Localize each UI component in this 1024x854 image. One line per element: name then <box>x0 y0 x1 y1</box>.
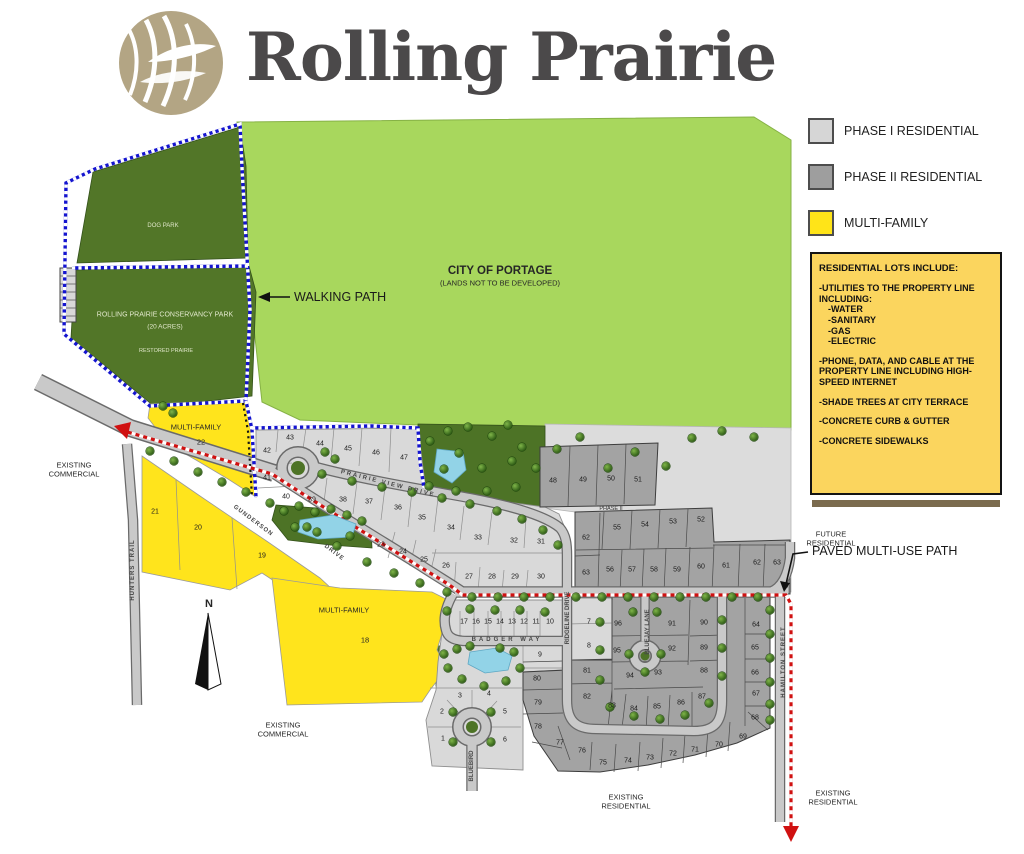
lot-58: 58 <box>650 567 658 574</box>
lot-64: 64 <box>752 622 760 629</box>
phase-ii-road-label: PHASE II <box>599 506 622 512</box>
lot-20: 20 <box>194 525 202 532</box>
existing-commercial-label-west-2: COMMERCIAL <box>49 470 100 479</box>
lot-16: 16 <box>472 619 480 626</box>
tree-icon <box>541 608 549 616</box>
tree-icon <box>416 579 424 587</box>
tree-icon <box>444 427 452 435</box>
lot-84: 84 <box>630 706 638 713</box>
tree-icon <box>705 699 713 707</box>
tree-icon <box>502 677 510 685</box>
tree-icon <box>426 437 434 445</box>
lot-69: 69 <box>739 734 747 741</box>
tree-icon <box>443 607 451 615</box>
tree-icon <box>520 593 528 601</box>
tree-icon <box>572 593 580 601</box>
dog-park-label: DOG PARK <box>147 223 178 229</box>
tree-icon <box>169 409 177 417</box>
legend-label: PHASE II RESIDENTIAL <box>844 170 982 184</box>
lot-89: 89 <box>700 645 708 652</box>
tree-icon <box>553 445 561 453</box>
tree-icon <box>487 738 495 746</box>
lot-94: 94 <box>626 673 634 680</box>
legend-item-3: MULTI-FAMILY <box>808 210 1020 236</box>
lot-83: 83 <box>608 703 616 710</box>
lot-5: 5 <box>503 709 507 716</box>
lot-45: 45 <box>344 446 352 453</box>
lot-12: 12 <box>520 619 528 626</box>
tree-icon <box>504 421 512 429</box>
tree-icon <box>518 515 526 523</box>
info-line: -SANITARY <box>828 315 993 326</box>
tree-icon <box>466 642 474 650</box>
tree-icon <box>629 608 637 616</box>
lot-42: 42 <box>263 448 271 455</box>
lot-40: 40 <box>282 494 290 501</box>
lot-13: 13 <box>508 619 516 626</box>
lot-56: 56 <box>606 567 614 574</box>
lot-25: 25 <box>420 557 428 564</box>
tree-icon <box>766 606 774 614</box>
tree-icon <box>480 682 488 690</box>
tree-icon <box>518 443 526 451</box>
tree-icon <box>242 488 250 496</box>
lot-27: 27 <box>465 574 473 581</box>
tree-icon <box>146 447 154 455</box>
tree-icon <box>295 502 303 510</box>
tree-icon <box>343 511 351 519</box>
lot-67: 67 <box>752 691 760 698</box>
tree-icon <box>766 654 774 662</box>
future-residential-bar <box>812 500 1000 507</box>
info-line: -GAS <box>828 326 993 337</box>
walking-path-label: WALKING PATH <box>294 290 386 304</box>
lot-79: 79 <box>534 700 542 707</box>
lot-71: 71 <box>691 747 699 754</box>
lot-85: 85 <box>653 704 661 711</box>
lot-81: 81 <box>583 668 591 675</box>
tree-icon <box>466 500 474 508</box>
legend-label: MULTI-FAMILY <box>844 216 928 230</box>
tree-icon <box>449 708 457 716</box>
lot-8: 8 <box>587 643 591 650</box>
lot-78: 78 <box>534 724 542 731</box>
lot-63: 63 <box>773 560 781 567</box>
tree-icon <box>766 700 774 708</box>
existing-commercial-label-south-2: COMMERCIAL <box>258 730 309 739</box>
phase1-lots-7-8-block <box>567 598 612 660</box>
info-line: -SHADE TREES AT CITY TERRACE <box>819 397 993 408</box>
tree-icon <box>483 487 491 495</box>
city-of-portage-sublabel: (LANDS NOT TO BE DEVELOPED) <box>440 279 560 288</box>
lot-23: 23 <box>377 542 385 549</box>
tree-icon <box>440 650 448 658</box>
tree-icon <box>468 593 476 601</box>
street-label: BADGER WAY <box>472 637 543 643</box>
tree-icon <box>653 608 661 616</box>
info-line: -CONCRETE SIDEWALKS <box>819 436 993 447</box>
tree-icon <box>750 433 758 441</box>
conservancy-acres-label: (20 ACRES) <box>147 324 182 331</box>
tree-icon <box>630 712 638 720</box>
info-line: -UTILITIES TO THE PROPERTY LINE INCLUDIN… <box>819 283 993 304</box>
lot-92: 92 <box>668 646 676 653</box>
tree-icon <box>218 478 226 486</box>
tree-icon <box>438 494 446 502</box>
lot-37: 37 <box>365 499 373 506</box>
tree-icon <box>681 711 689 719</box>
lot-39: 39 <box>308 497 316 504</box>
future-residential-label: FUTURE <box>816 530 846 539</box>
tree-icon <box>280 507 288 515</box>
lot-74: 74 <box>624 758 632 765</box>
tree-icon <box>496 644 504 652</box>
lot-62: 62 <box>753 560 761 567</box>
conservancy-park-area <box>71 266 256 407</box>
lot-10: 10 <box>546 619 554 626</box>
page: { "title": "Rolling Prairie", "colors": … <box>0 0 1024 854</box>
lot-82: 82 <box>583 694 591 701</box>
tree-icon <box>532 464 540 472</box>
tree-icon <box>650 593 658 601</box>
lot-17: 17 <box>460 619 468 626</box>
tree-icon <box>766 678 774 686</box>
tree-icon <box>688 434 696 442</box>
tree-icon <box>266 499 274 507</box>
lot-29: 29 <box>511 574 519 581</box>
lot-88: 88 <box>700 668 708 675</box>
lot-66: 66 <box>751 670 759 677</box>
tree-icon <box>512 483 520 491</box>
lot-36: 36 <box>394 505 402 512</box>
multi-family-22-number: 22 <box>197 438 205 447</box>
tree-icon <box>466 605 474 613</box>
tree-icon <box>358 517 366 525</box>
multi-family-22-label: MULTI-FAMILY <box>171 423 222 432</box>
tree-icon <box>443 588 451 596</box>
tree-icon <box>604 464 612 472</box>
lot-31: 31 <box>537 539 545 546</box>
lot-43: 43 <box>286 435 294 442</box>
tree-icon <box>624 593 632 601</box>
lot-72: 72 <box>669 751 677 758</box>
lot-28: 28 <box>488 574 496 581</box>
lot-41: 41 <box>263 475 271 482</box>
lot-49: 49 <box>579 477 587 484</box>
tree-icon <box>444 664 452 672</box>
lot-57: 57 <box>628 567 636 574</box>
tree-icon <box>327 505 335 513</box>
lot-7: 7 <box>587 619 591 626</box>
street-label: HUNTERS TRAIL <box>130 539 136 600</box>
tree-icon <box>494 593 502 601</box>
info-line: -WATER <box>828 304 993 315</box>
tree-icon <box>331 455 339 463</box>
tree-icon <box>425 482 433 490</box>
lot-50: 50 <box>607 476 615 483</box>
tree-icon <box>539 526 547 534</box>
tree-icon <box>487 708 495 716</box>
lot-3: 3 <box>458 693 462 700</box>
future-residential-label-2: RESIDENTIAL <box>806 539 855 548</box>
lot-9: 9 <box>538 652 542 659</box>
info-box: RESIDENTIAL LOTS INCLUDE:-UTILITIES TO T… <box>810 252 1002 495</box>
lot-76: 76 <box>578 748 586 755</box>
tree-icon <box>702 593 710 601</box>
lot-63: 63 <box>582 570 590 577</box>
lot-55: 55 <box>613 525 621 532</box>
tree-icon <box>311 508 319 516</box>
tree-icon <box>625 650 633 658</box>
info-line: RESIDENTIAL LOTS INCLUDE: <box>819 263 993 274</box>
lot-21: 21 <box>151 509 159 516</box>
lot-6: 6 <box>503 737 507 744</box>
lot-95: 95 <box>613 648 621 655</box>
lot-44: 44 <box>316 441 324 448</box>
lot-96: 96 <box>614 621 622 628</box>
existing-commercial-label-west: EXISTING <box>56 461 91 470</box>
lot-77: 77 <box>556 740 564 747</box>
lot-47: 47 <box>400 455 408 462</box>
tree-icon <box>657 650 665 658</box>
lot-86: 86 <box>677 700 685 707</box>
lot-24: 24 <box>399 549 407 556</box>
info-line: -ELECTRIC <box>828 336 993 347</box>
tree-icon <box>170 457 178 465</box>
tree-icon <box>449 738 457 746</box>
info-line: -PHONE, DATA, AND CABLE AT THE PROPERTY … <box>819 356 993 388</box>
tree-icon <box>390 569 398 577</box>
lot-34: 34 <box>447 525 455 532</box>
lot-51: 51 <box>634 477 642 484</box>
lot-59: 59 <box>673 567 681 574</box>
lot-90: 90 <box>700 620 708 627</box>
tree-icon <box>455 449 463 457</box>
legend: PHASE I RESIDENTIALPHASE II RESIDENTIALM… <box>808 118 1020 256</box>
conservancy-park-label: ROLLING PRAIRIE CONSERVANCY PARK <box>97 312 233 319</box>
tree-icon <box>478 464 486 472</box>
lot-62: 62 <box>582 535 590 542</box>
info-line: -CONCRETE CURB & GUTTER <box>819 416 993 427</box>
tree-icon <box>718 672 726 680</box>
multi-family-18-label: MULTI-FAMILY <box>319 606 370 615</box>
tree-icon <box>596 646 604 654</box>
tree-icon <box>766 630 774 638</box>
lot-93: 93 <box>654 670 662 677</box>
tree-icon <box>453 645 461 653</box>
lot-35: 35 <box>418 515 426 522</box>
tree-icon <box>508 457 516 465</box>
lot-4: 4 <box>487 691 491 698</box>
lot-30: 30 <box>537 574 545 581</box>
tree-icon <box>464 423 472 431</box>
existing-residential-label-south-2: RESIDENTIAL <box>601 802 650 811</box>
tree-icon <box>656 715 664 723</box>
tree-icon <box>346 532 354 540</box>
lot-60: 60 <box>697 564 705 571</box>
tree-icon <box>510 648 518 656</box>
existing-commercial-label-south: EXISTING <box>265 721 300 730</box>
restored-prairie-label: RESTORED PRAIRIE <box>139 348 193 354</box>
tree-icon <box>303 523 311 531</box>
tree-icon <box>491 606 499 614</box>
lot-1: 1 <box>441 736 445 743</box>
lot-15: 15 <box>484 619 492 626</box>
street-label: HAMILTON STREET <box>781 626 787 697</box>
lot-91: 91 <box>668 621 676 628</box>
north-label: N <box>205 598 213 610</box>
lot-73: 73 <box>646 755 654 762</box>
tree-icon <box>321 448 329 456</box>
tree-icon <box>458 675 466 683</box>
tree-icon <box>718 644 726 652</box>
legend-item-2: PHASE II RESIDENTIAL <box>808 164 1020 190</box>
street-label: BLUEJAY LANE <box>645 609 651 654</box>
lot-19: 19 <box>258 553 266 560</box>
lot-48: 48 <box>549 478 557 485</box>
tree-icon <box>676 593 684 601</box>
tree-icon <box>452 487 460 495</box>
lot-75: 75 <box>599 760 607 767</box>
lot-32: 32 <box>510 538 518 545</box>
tree-icon <box>662 462 670 470</box>
tree-icon <box>641 668 649 676</box>
lot-52: 52 <box>697 517 705 524</box>
tree-icon <box>440 465 448 473</box>
lot-61: 61 <box>722 563 730 570</box>
tree-icon <box>546 593 554 601</box>
tree-icon <box>493 507 501 515</box>
tree-icon <box>313 528 321 536</box>
tree-icon <box>718 616 726 624</box>
phase-1-swatch <box>808 118 834 144</box>
lot-54: 54 <box>641 522 649 529</box>
tree-icon <box>318 470 326 478</box>
lot-68: 68 <box>751 715 759 722</box>
existing-residential-label-east-2: RESIDENTIAL <box>808 798 857 807</box>
north-arrow-icon <box>195 613 221 690</box>
lot-46: 46 <box>372 450 380 457</box>
tree-icon <box>598 593 606 601</box>
lot-70: 70 <box>715 742 723 749</box>
logo-title: Rolling Prairie <box>246 18 776 96</box>
parking-hatch <box>60 268 76 322</box>
lot-26: 26 <box>442 563 450 570</box>
tree-icon <box>159 402 167 410</box>
multi-family-swatch <box>808 210 834 236</box>
tree-icon <box>718 427 726 435</box>
tree-icon <box>516 606 524 614</box>
multi-family-18-number: 18 <box>361 636 369 645</box>
street-label: BLUEBIRD <box>469 751 475 782</box>
lot-38: 38 <box>339 497 347 504</box>
tree-icon <box>516 664 524 672</box>
logo-grass-icon <box>119 11 223 115</box>
tree-icon <box>291 523 299 531</box>
phase-2-swatch <box>808 164 834 190</box>
tree-icon <box>194 468 202 476</box>
tree-icon <box>596 676 604 684</box>
legend-label: PHASE I RESIDENTIAL <box>844 124 979 138</box>
tree-icon <box>596 618 604 626</box>
existing-residential-label-south: EXISTING <box>608 793 643 802</box>
lot-2: 2 <box>440 709 444 716</box>
tree-icon <box>554 541 562 549</box>
tree-icon <box>363 558 371 566</box>
lot-80: 80 <box>533 676 541 683</box>
lot-53: 53 <box>669 519 677 526</box>
lot-14: 14 <box>496 619 504 626</box>
lot-33: 33 <box>474 535 482 542</box>
tree-icon <box>488 432 496 440</box>
tree-icon <box>754 593 762 601</box>
lot-11: 11 <box>532 619 539 626</box>
lot-87: 87 <box>698 694 706 701</box>
tree-icon <box>576 433 584 441</box>
legend-item-1: PHASE I RESIDENTIAL <box>808 118 1020 144</box>
street-label: RIDGELINE DRIVE <box>565 592 571 645</box>
tree-icon <box>766 716 774 724</box>
tree-icon <box>728 593 736 601</box>
tree-icon <box>631 448 639 456</box>
city-of-portage-label: CITY OF PORTAGE <box>448 265 552 277</box>
lot-65: 65 <box>751 645 759 652</box>
existing-residential-label-east: EXISTING <box>815 789 850 798</box>
